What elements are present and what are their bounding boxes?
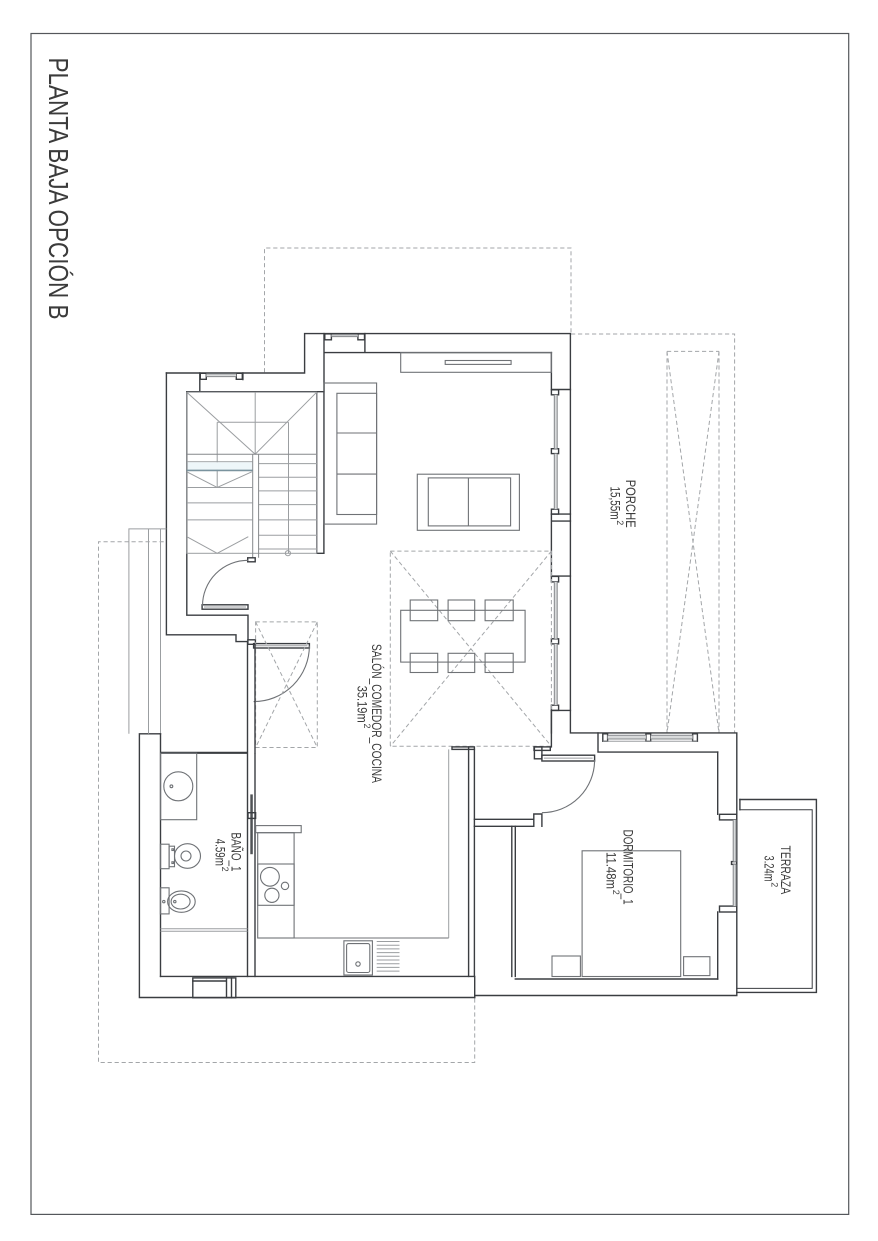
svg-text:11.48m: 11.48m <box>604 852 619 889</box>
svg-text:3.24m: 3.24m <box>762 856 777 882</box>
svg-text:2: 2 <box>611 890 621 895</box>
svg-text:35.19m: 35.19m <box>355 686 370 723</box>
svg-text:DORMITORIO_1: DORMITORIO_1 <box>621 830 636 905</box>
svg-text:4.59m: 4.59m <box>213 839 228 866</box>
svg-text:SALÓN_COMEDOR_COCINA: SALÓN_COMEDOR_COCINA <box>369 644 384 783</box>
svg-text:15,55m: 15,55m <box>608 487 623 520</box>
svg-text:2: 2 <box>615 520 625 525</box>
svg-text:2: 2 <box>220 867 230 872</box>
svg-text:PLANTA BAJA OPCIÓN B: PLANTA BAJA OPCIÓN B <box>43 58 74 320</box>
svg-text:2: 2 <box>769 882 779 887</box>
svg-text:2: 2 <box>362 724 372 729</box>
